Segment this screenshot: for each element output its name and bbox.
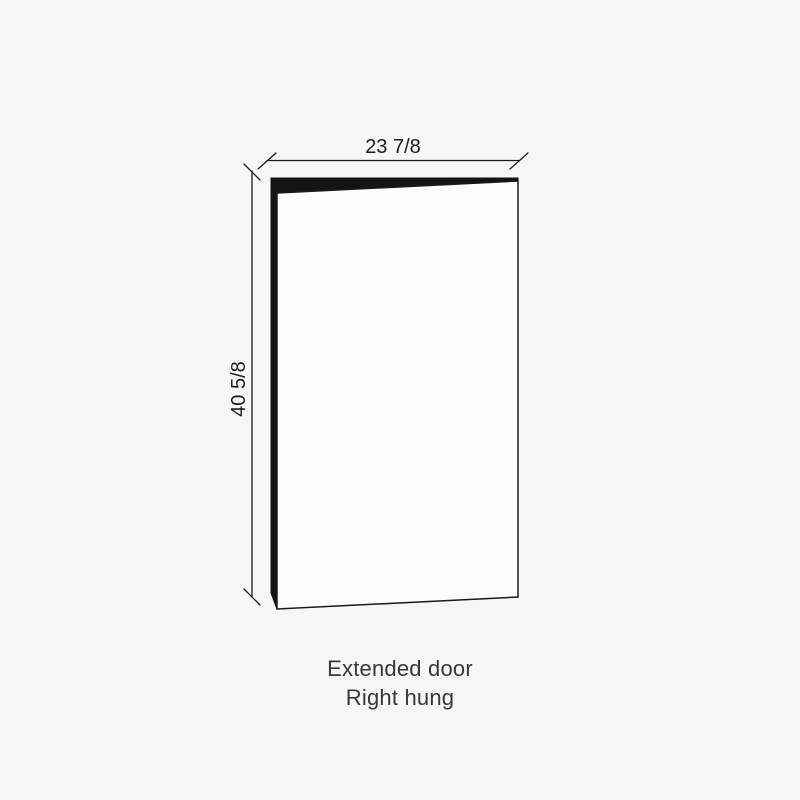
diagram-canvas: 23 7/8 40 5/8 Extended door Right hung [0,0,800,800]
door-face [277,181,518,609]
diagram-caption: Extended door Right hung [0,654,800,712]
height-dimension-label: 40 5/8 [228,319,250,459]
width-dimension-label: 23 7/8 [268,136,518,159]
caption-line-1: Extended door [0,654,800,683]
caption-line-2: Right hung [0,683,800,712]
